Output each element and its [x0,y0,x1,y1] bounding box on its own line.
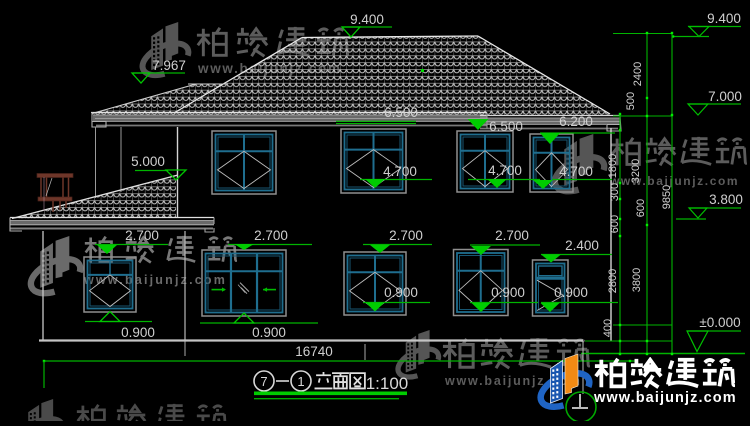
svg-text:300: 300 [609,183,621,201]
svg-text:3800: 3800 [631,268,643,292]
svg-text:2.700: 2.700 [125,228,159,243]
svg-text:3.800: 3.800 [709,192,743,207]
svg-text:1800: 1800 [607,154,619,178]
svg-text:9850: 9850 [661,185,673,209]
svg-text:2400: 2400 [632,62,644,86]
svg-text:2.400: 2.400 [565,238,599,253]
svg-text:9.400: 9.400 [350,12,384,27]
svg-text:1:100: 1:100 [366,374,409,393]
svg-text:0.900: 0.900 [121,325,155,340]
svg-text:16740: 16740 [295,344,333,359]
svg-text:7.967: 7.967 [152,58,186,73]
svg-text:4.700: 4.700 [383,164,417,179]
svg-text:5.000: 5.000 [131,154,165,169]
svg-text:7: 7 [260,374,267,389]
svg-text:500: 500 [625,92,637,110]
svg-text:0.900: 0.900 [554,285,588,300]
svg-text:±0.000: ±0.000 [699,315,740,330]
svg-text:1: 1 [297,374,304,389]
svg-text:0.900: 0.900 [384,285,418,300]
svg-text:3200: 3200 [630,159,642,183]
svg-text:7.000: 7.000 [708,89,742,104]
svg-text:6.200: 6.200 [559,114,593,129]
svg-text:600: 600 [635,199,647,217]
svg-text:2800: 2800 [607,269,619,293]
svg-text:4.700: 4.700 [559,164,593,179]
svg-text:6.500: 6.500 [384,105,418,120]
svg-text:2.700: 2.700 [495,228,529,243]
svg-text:2.700: 2.700 [389,228,423,243]
svg-text:400: 400 [602,319,614,337]
svg-text:4.700: 4.700 [488,163,522,178]
svg-text:9.400: 9.400 [707,11,741,26]
svg-text:0.900: 0.900 [491,285,525,300]
svg-text:6.500: 6.500 [489,119,523,134]
svg-text:600: 600 [609,215,621,233]
svg-text:www.baijunjz.com: www.baijunjz.com [609,174,739,188]
svg-text:0.900: 0.900 [252,325,286,340]
svg-text:2.700: 2.700 [254,228,288,243]
svg-text:www.baijunjz.com: www.baijunjz.com [593,390,737,406]
